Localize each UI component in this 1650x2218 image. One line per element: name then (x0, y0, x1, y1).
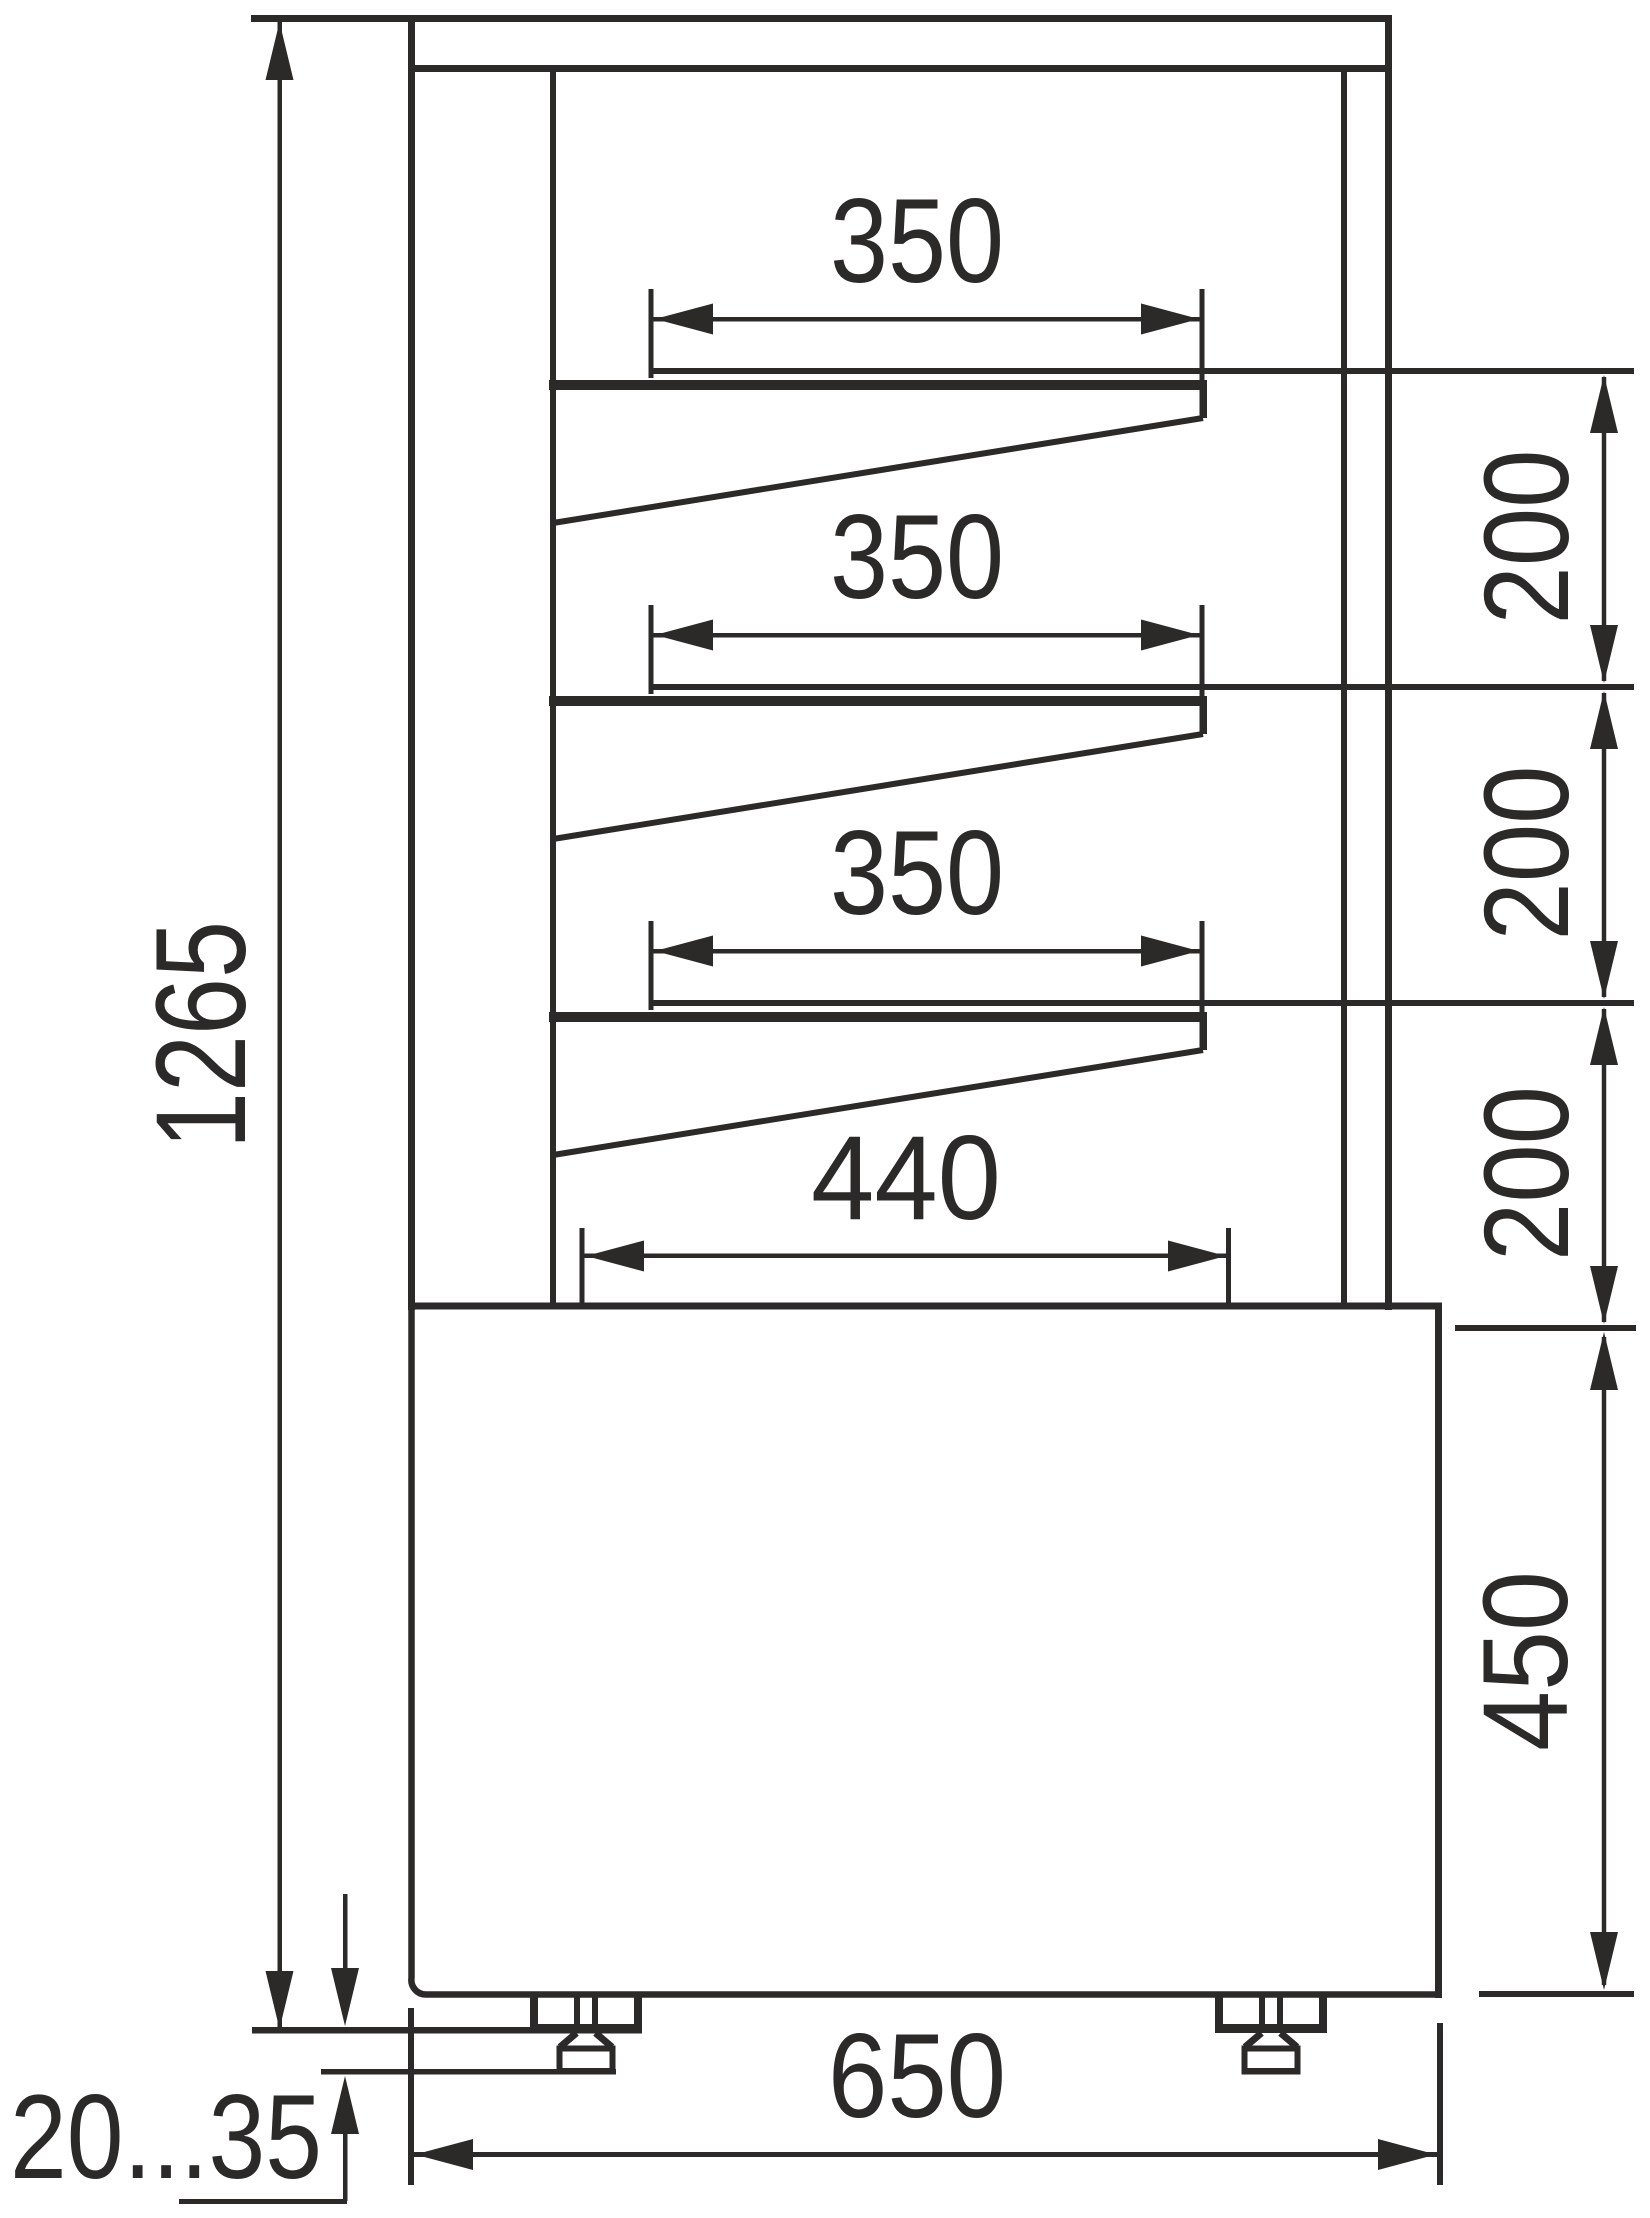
svg-text:350: 350 (830, 490, 1004, 624)
svg-text:20...35: 20...35 (10, 2070, 322, 2204)
svg-text:450: 450 (1457, 1571, 1593, 1751)
svg-text:350: 350 (830, 806, 1004, 940)
svg-text:200: 200 (1458, 450, 1594, 625)
svg-text:440: 440 (811, 1111, 1001, 1245)
svg-text:650: 650 (828, 2009, 1006, 2143)
svg-text:200: 200 (1458, 766, 1594, 941)
svg-text:350: 350 (830, 174, 1004, 308)
svg-text:200: 200 (1458, 1086, 1594, 1261)
svg-text:1265: 1265 (130, 921, 273, 1149)
